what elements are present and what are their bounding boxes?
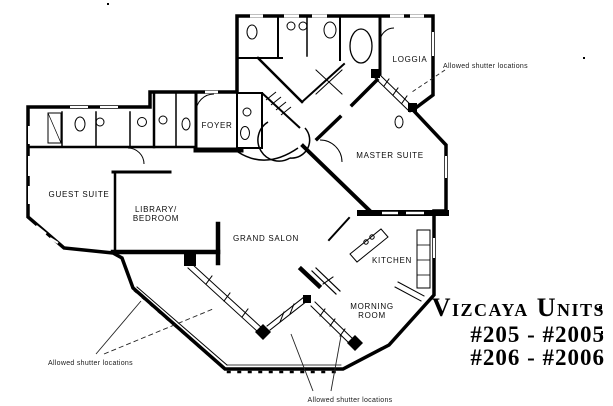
leader-top-right: [412, 70, 445, 92]
annotation-shutter-bottom-left: Allowed shutter locations: [48, 360, 133, 367]
room-label-library-line2: BEDROOM: [133, 214, 179, 223]
room-label-library-line1: LIBRARY/: [135, 205, 177, 214]
leader-bottom-left-2: [104, 309, 213, 354]
room-label-kitchen: KITCHEN: [372, 256, 412, 265]
unit-range-line-2: #206 - #2006: [375, 346, 605, 369]
annotation-shutter-bottom-center: Allowed shutter locations: [308, 397, 393, 404]
room-label-loggia: LOGGIA: [393, 55, 428, 64]
title-block: Vizcaya Units #205 - #2005 #206 - #2006: [375, 294, 605, 370]
scan-specks: [107, 3, 603, 334]
room-label-grand-salon: GRAND SALON: [233, 234, 299, 243]
leader-bottom-left-1: [96, 301, 141, 354]
annotation-shutter-top-right: Allowed shutter locations: [443, 63, 528, 70]
leader-bottom-center-1: [291, 334, 313, 391]
room-label-guest-suite: GUEST SUITE: [49, 190, 110, 199]
development-name: Vizcaya Units: [375, 294, 605, 323]
unit-range-line-1: #205 - #2005: [375, 323, 605, 346]
leader-bottom-center-2: [331, 336, 341, 391]
room-label-foyer: FOYER: [201, 121, 232, 130]
room-label-master-suite: MASTER SUITE: [356, 151, 424, 160]
floor-plan-page: GUEST SUITE LIBRARY/ BEDROOM FOYER GRAND…: [0, 0, 613, 406]
